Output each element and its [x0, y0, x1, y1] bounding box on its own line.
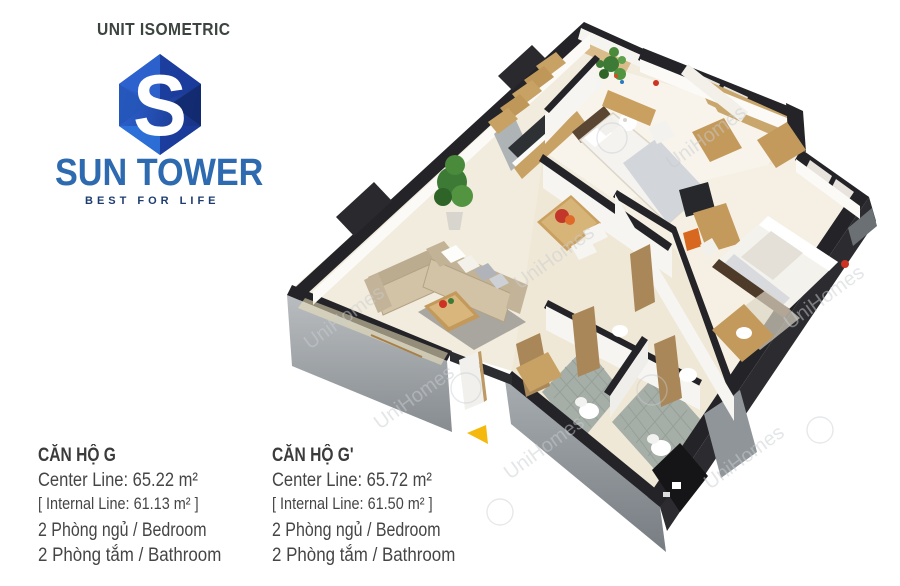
- svg-text:S: S: [133, 58, 187, 154]
